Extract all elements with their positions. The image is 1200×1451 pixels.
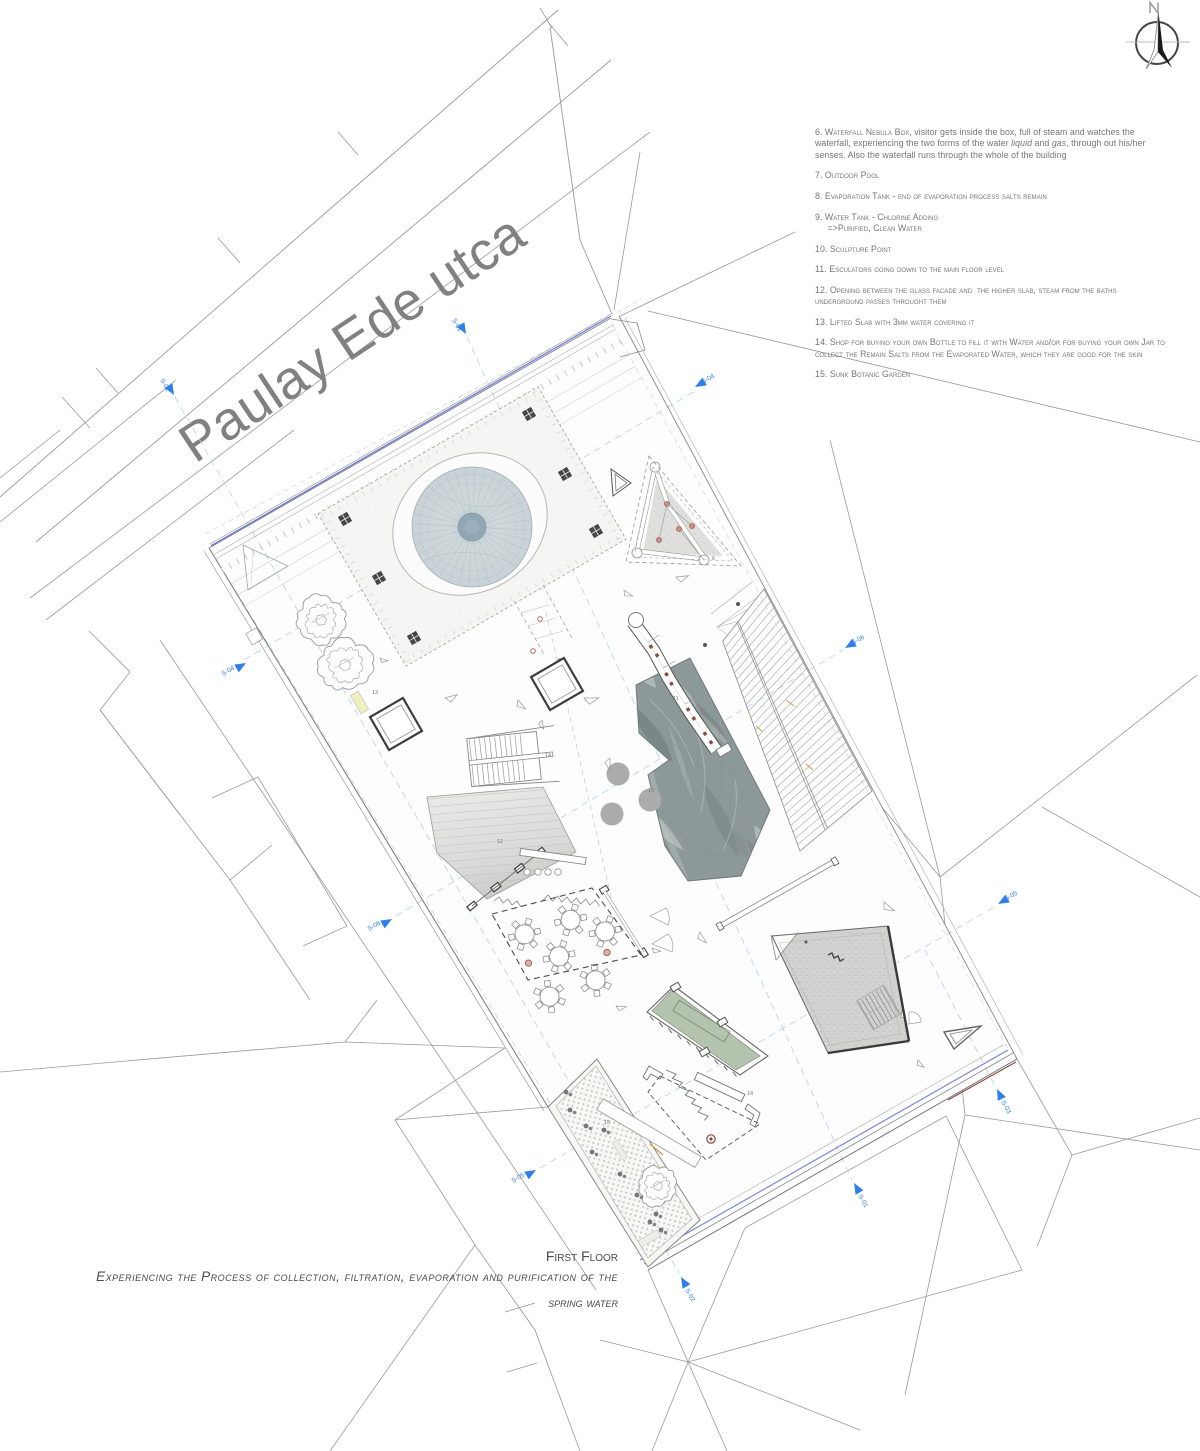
svg-text:S-04: S-04: [701, 373, 717, 386]
svg-text:S-02: S-02: [683, 1288, 696, 1304]
svg-text:S-04: S-04: [221, 665, 237, 678]
svg-text:S-06: S-06: [367, 920, 383, 933]
svg-text:14: 14: [545, 753, 551, 759]
svg-text:13: 13: [372, 690, 378, 696]
svg-text:10: 10: [648, 788, 654, 794]
svg-text:6: 6: [712, 556, 715, 562]
svg-text:14: 14: [747, 1091, 753, 1097]
svg-text:S-03: S-03: [999, 1100, 1012, 1116]
svg-text:12: 12: [497, 839, 503, 845]
svg-text:S-01: S-01: [450, 318, 463, 334]
svg-text:S-01: S-01: [856, 1194, 869, 1210]
svg-text:15: 15: [604, 1120, 610, 1126]
svg-text:11: 11: [673, 696, 679, 702]
svg-text:S-06: S-06: [851, 634, 867, 647]
svg-text:S-05: S-05: [1004, 890, 1020, 903]
